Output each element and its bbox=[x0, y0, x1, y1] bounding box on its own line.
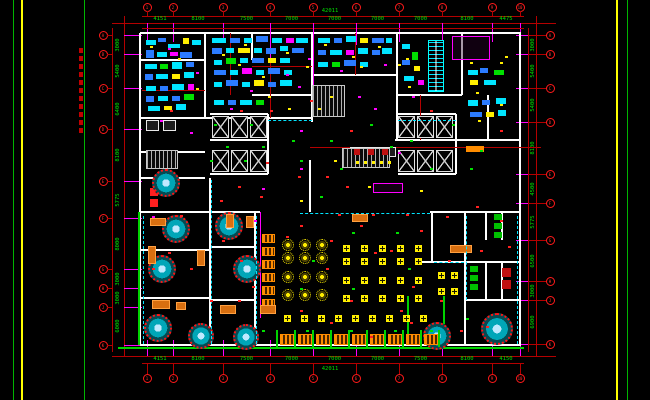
equipment-block bbox=[386, 38, 392, 43]
annotation-mark bbox=[500, 220, 503, 222]
cad-drawing-canvas[interactable]: 1415128100375004700057000670007700088100… bbox=[0, 0, 650, 400]
dining-table-square bbox=[415, 277, 422, 284]
dining-table-square bbox=[361, 295, 368, 302]
dim-label: 6400 bbox=[115, 102, 121, 115]
dim-label: 8100 bbox=[191, 356, 204, 362]
grid-bubble: C bbox=[546, 84, 555, 93]
annotation-mark bbox=[330, 96, 333, 98]
drape-line bbox=[466, 216, 467, 300]
annotation-mark bbox=[262, 76, 265, 78]
escalator bbox=[428, 40, 444, 92]
equipment-block bbox=[188, 84, 194, 90]
dim-label: 7000 bbox=[371, 356, 384, 362]
drape-line bbox=[434, 262, 464, 263]
grid-bubble: 9 bbox=[488, 374, 497, 383]
grid-bubble: 8 bbox=[438, 374, 447, 383]
grid-bubble: G bbox=[546, 236, 555, 245]
sofa-cabinet bbox=[150, 218, 166, 226]
toilet-fixture bbox=[470, 275, 478, 281]
dim-label: 8100 bbox=[460, 16, 473, 22]
elevator-cell bbox=[212, 116, 229, 138]
dim-label: 3000 bbox=[115, 38, 121, 51]
margin-vertical-text-mark bbox=[79, 56, 83, 61]
annotation-mark bbox=[262, 330, 265, 332]
equipment-block bbox=[280, 58, 290, 63]
bubble-stem bbox=[492, 363, 493, 374]
equipment-block bbox=[256, 36, 268, 42]
equipment-block bbox=[240, 100, 252, 105]
counter-block bbox=[146, 120, 159, 131]
dim-label: 3000 bbox=[530, 284, 536, 297]
grid-bubble: H bbox=[546, 277, 555, 286]
bubble-stem bbox=[107, 288, 112, 289]
equipment-block bbox=[494, 70, 504, 75]
annotation-mark bbox=[170, 110, 173, 112]
dining-table-square bbox=[361, 245, 368, 252]
annotation-mark bbox=[318, 108, 321, 110]
annotation-mark bbox=[452, 124, 455, 126]
elevator-cell bbox=[436, 150, 453, 172]
bubble-stem bbox=[270, 11, 271, 16]
equipment-block bbox=[230, 70, 238, 75]
annotation-mark bbox=[262, 188, 265, 190]
booth-divider bbox=[294, 330, 295, 347]
annotation-mark bbox=[178, 58, 181, 60]
dining-table-square bbox=[415, 258, 422, 265]
equipment-block bbox=[170, 52, 178, 56]
annotation-mark bbox=[334, 160, 337, 162]
equipment-block bbox=[280, 80, 292, 86]
dim-label: 7000 bbox=[414, 16, 427, 22]
elevator-cell bbox=[212, 150, 229, 172]
bubble-stem bbox=[107, 307, 112, 308]
annotation-mark bbox=[238, 64, 241, 66]
annotation-mark bbox=[476, 206, 479, 208]
annotation-mark bbox=[244, 44, 247, 46]
annotation-mark bbox=[268, 96, 271, 98]
dim-line bbox=[124, 16, 125, 356]
sofa-cabinet bbox=[220, 305, 236, 314]
grid-bubble: 6 bbox=[352, 374, 361, 383]
sofa-cabinet bbox=[246, 216, 254, 228]
magenta-grid-line bbox=[270, 23, 271, 60]
bubble-stem bbox=[147, 11, 148, 16]
grid-bubble: F bbox=[546, 199, 555, 208]
dining-table-square bbox=[379, 277, 386, 284]
dim-label: 4151 bbox=[153, 16, 166, 22]
bubble-stem bbox=[270, 363, 271, 374]
annotation-mark bbox=[352, 232, 355, 234]
dining-table-square bbox=[301, 315, 308, 322]
equipment-block bbox=[254, 48, 262, 53]
grid-bubble: 10 bbox=[516, 374, 525, 383]
annotation-mark bbox=[500, 130, 503, 132]
annotation-mark bbox=[398, 152, 401, 154]
annotation-mark bbox=[505, 56, 508, 58]
annotation-mark bbox=[460, 330, 463, 332]
bubble-stem bbox=[223, 11, 224, 16]
dining-table-square bbox=[369, 315, 376, 322]
equipment-block bbox=[160, 64, 168, 69]
equipment-block bbox=[372, 38, 384, 43]
equipment-block bbox=[346, 36, 356, 42]
annotation-mark bbox=[310, 100, 313, 102]
booth-divider bbox=[384, 330, 385, 347]
annotation-mark bbox=[500, 62, 503, 64]
booth-divider bbox=[402, 330, 403, 347]
counter-block bbox=[163, 120, 176, 131]
annotation-mark bbox=[180, 215, 183, 217]
equipment-block bbox=[172, 62, 182, 69]
margin-vertical-text-mark bbox=[79, 104, 83, 109]
equipment-block bbox=[418, 80, 424, 85]
grid-bubble: 5 bbox=[309, 374, 318, 383]
booth-seat bbox=[424, 334, 438, 345]
dining-table-square bbox=[397, 295, 404, 302]
wall-segment bbox=[140, 32, 521, 34]
wall-segment bbox=[210, 113, 268, 115]
dining-table-round bbox=[282, 271, 294, 283]
dim-label: 7500 bbox=[240, 356, 253, 362]
equipment-block bbox=[230, 38, 240, 43]
dining-table-square bbox=[397, 277, 404, 284]
equipment-block bbox=[148, 106, 160, 111]
equipment-block bbox=[470, 112, 482, 117]
dining-table-square bbox=[379, 258, 386, 265]
banquet-table bbox=[144, 314, 172, 342]
toilet-fixture bbox=[494, 223, 502, 229]
red-annotation-line bbox=[252, 66, 312, 67]
grid-bubble: B bbox=[546, 50, 555, 59]
annotation-mark bbox=[286, 52, 289, 54]
annotation-mark bbox=[238, 186, 241, 188]
dim-label: 5775 bbox=[115, 193, 121, 206]
magenta-room-outline bbox=[452, 36, 490, 60]
bubble-stem bbox=[528, 88, 546, 89]
equipment-block bbox=[244, 38, 252, 43]
booth-seat bbox=[334, 334, 348, 345]
wall-segment bbox=[267, 114, 269, 174]
equipment-block bbox=[344, 60, 356, 66]
annotation-mark bbox=[292, 140, 295, 142]
equipment-block bbox=[150, 199, 158, 207]
dim-label: 7000 bbox=[285, 16, 298, 22]
equipment-block bbox=[330, 50, 342, 55]
toilet-fixture bbox=[494, 232, 502, 238]
annotation-mark bbox=[370, 336, 373, 338]
red-annotation-line bbox=[142, 28, 524, 29]
sheet-border-line bbox=[13, 0, 14, 400]
equipment-block bbox=[172, 84, 184, 90]
wall-segment bbox=[140, 59, 205, 61]
sheet-border-line bbox=[616, 0, 618, 400]
annotation-mark bbox=[408, 86, 411, 88]
bubble-stem bbox=[399, 363, 400, 374]
booth-divider bbox=[330, 330, 331, 347]
annotation-mark bbox=[298, 176, 301, 178]
dim-label: 5400 bbox=[115, 64, 121, 77]
annotation-mark bbox=[340, 168, 343, 170]
annotation-mark bbox=[446, 216, 449, 218]
annotation-mark bbox=[250, 90, 253, 92]
equipment-block bbox=[214, 100, 224, 105]
booth-seat bbox=[406, 334, 420, 345]
equipment-block bbox=[228, 100, 236, 105]
dining-table-square bbox=[343, 258, 350, 265]
annotation-mark bbox=[196, 88, 199, 90]
drape-line bbox=[256, 216, 257, 344]
equipment-block bbox=[145, 64, 157, 69]
dining-table-square bbox=[438, 288, 445, 295]
equipment-block bbox=[192, 40, 201, 45]
booth-seat bbox=[388, 334, 402, 345]
annotation-mark bbox=[400, 310, 403, 312]
equipment-block bbox=[172, 74, 180, 79]
dining-table-round bbox=[299, 252, 311, 264]
margin-vertical-text-mark bbox=[79, 112, 83, 117]
dining-table-square bbox=[361, 277, 368, 284]
equipment-block bbox=[382, 48, 392, 54]
annotation-mark bbox=[352, 56, 355, 58]
annotation-mark bbox=[210, 160, 213, 162]
stool-dot bbox=[364, 161, 367, 164]
dining-table-round bbox=[299, 271, 311, 283]
equipment-block bbox=[212, 48, 222, 54]
equipment-block bbox=[334, 38, 342, 43]
equipment-block bbox=[372, 50, 380, 55]
annotation-mark bbox=[326, 176, 329, 178]
annotation-mark bbox=[478, 120, 481, 122]
drape-line bbox=[143, 216, 144, 344]
sheet-border-line bbox=[21, 0, 23, 400]
dining-table-square bbox=[335, 315, 342, 322]
annotation-mark bbox=[340, 70, 343, 72]
toilet-fixture bbox=[470, 266, 478, 272]
dining-table-square bbox=[403, 315, 410, 322]
dim-label: 3000 bbox=[115, 272, 121, 285]
equipment-block bbox=[268, 68, 280, 74]
annotation-mark bbox=[330, 240, 333, 242]
booth-seat bbox=[316, 334, 330, 345]
equipment-block bbox=[360, 38, 368, 43]
annotation-mark bbox=[408, 268, 411, 270]
annotation-mark bbox=[390, 146, 393, 148]
storefront-line bbox=[138, 212, 140, 345]
annotation-mark bbox=[168, 48, 171, 50]
grid-tick bbox=[516, 35, 528, 36]
annotation-mark bbox=[330, 140, 333, 142]
equipment-block bbox=[226, 58, 236, 64]
annotation-mark bbox=[300, 225, 303, 227]
dining-table-square bbox=[451, 288, 458, 295]
dining-table-square bbox=[415, 295, 422, 302]
equipment-block bbox=[145, 74, 153, 80]
dim-label: 8100 bbox=[460, 356, 473, 362]
equipment-block bbox=[486, 112, 494, 117]
equipment-block bbox=[414, 66, 420, 71]
dining-table-square bbox=[352, 315, 359, 322]
booth-divider bbox=[276, 330, 277, 347]
annotation-mark bbox=[470, 62, 473, 64]
grid-tick bbox=[516, 54, 528, 55]
dim-label: 7000 bbox=[328, 356, 341, 362]
annotation-mark bbox=[430, 168, 433, 170]
annotation-mark bbox=[394, 330, 397, 332]
annotation-mark bbox=[352, 288, 355, 290]
sheet-border-line bbox=[627, 0, 628, 400]
bubble-stem bbox=[528, 54, 546, 55]
annotation-mark bbox=[168, 252, 171, 254]
grid-bubble: J bbox=[546, 296, 555, 305]
booth-seat bbox=[262, 234, 275, 243]
wall-segment bbox=[210, 299, 255, 301]
equipment-block bbox=[332, 62, 340, 67]
annotation-mark bbox=[430, 110, 433, 112]
dim-label: 4150 bbox=[499, 356, 512, 362]
wall-segment bbox=[485, 212, 487, 240]
equipment-block bbox=[402, 60, 410, 65]
margin-vertical-text-mark bbox=[79, 128, 83, 133]
annotation-mark bbox=[250, 124, 253, 126]
dining-table-square bbox=[451, 272, 458, 279]
bubble-stem bbox=[107, 181, 112, 182]
wall-segment bbox=[465, 299, 520, 301]
equipment-block bbox=[186, 62, 194, 67]
booth-seat bbox=[280, 334, 294, 345]
grid-bubble: 7 bbox=[395, 374, 404, 383]
annotation-mark bbox=[254, 220, 257, 222]
booth-divider bbox=[348, 330, 349, 347]
sofa-cabinet bbox=[450, 245, 472, 253]
stair-block bbox=[312, 85, 345, 117]
margin-vertical-text-mark bbox=[79, 64, 83, 69]
equipment-block bbox=[180, 52, 192, 58]
equipment-block bbox=[358, 48, 368, 54]
dining-table-round bbox=[282, 239, 294, 251]
bubble-stem bbox=[147, 363, 148, 374]
booth-seat bbox=[262, 286, 275, 295]
annotation-mark bbox=[326, 268, 329, 270]
booth-seat bbox=[262, 260, 275, 269]
bubble-stem bbox=[313, 363, 314, 374]
dim-label: 7000 bbox=[328, 16, 341, 22]
grid-bubble: 1 bbox=[143, 374, 152, 383]
annotation-mark bbox=[260, 196, 263, 198]
dim-label: 5400 bbox=[530, 64, 536, 77]
booth-seat bbox=[262, 247, 275, 256]
wall-segment bbox=[252, 94, 312, 96]
booth-divider bbox=[312, 330, 313, 347]
wall-segment bbox=[430, 211, 521, 213]
annotation-mark bbox=[320, 196, 323, 198]
annotation-mark bbox=[306, 330, 309, 332]
margin-vertical-text-mark bbox=[79, 120, 83, 125]
margin-vertical-text-mark bbox=[79, 96, 83, 101]
dim-label: 7500 bbox=[240, 16, 253, 22]
dim-total: 42011 bbox=[322, 8, 339, 14]
annotation-mark bbox=[150, 46, 153, 48]
bubble-stem bbox=[107, 54, 112, 55]
grid-bubble: 2 bbox=[169, 374, 178, 383]
annotation-mark bbox=[308, 58, 311, 60]
equipment-block bbox=[157, 52, 167, 57]
equipment-block bbox=[146, 96, 154, 102]
equipment-block bbox=[468, 70, 478, 75]
equipment-block bbox=[318, 50, 326, 55]
stool-dot bbox=[380, 161, 383, 164]
annotation-mark bbox=[324, 44, 327, 46]
annotation-mark bbox=[412, 96, 415, 98]
drape-line bbox=[211, 180, 212, 344]
annotation-mark bbox=[374, 108, 377, 110]
annotation-mark bbox=[350, 300, 353, 302]
grid-tick bbox=[516, 203, 528, 204]
equipment-block bbox=[156, 74, 168, 79]
dim-total: 42011 bbox=[322, 366, 339, 372]
annotation-mark bbox=[222, 54, 225, 56]
wall-segment bbox=[485, 262, 487, 300]
sink-fixture bbox=[354, 149, 360, 155]
bubble-stem bbox=[223, 363, 224, 374]
annotation-mark bbox=[430, 330, 433, 332]
storefront-line bbox=[118, 347, 524, 349]
annotation-mark bbox=[160, 120, 163, 122]
wall-segment bbox=[204, 33, 206, 118]
bubble-stem bbox=[528, 344, 546, 345]
dining-table-square bbox=[379, 295, 386, 302]
annotation-mark bbox=[410, 140, 413, 142]
toilet-fixture bbox=[470, 284, 478, 290]
bubble-stem bbox=[528, 203, 546, 204]
equipment-block bbox=[412, 52, 418, 60]
equipment-block bbox=[318, 62, 328, 67]
dining-table-square bbox=[343, 295, 350, 302]
grid-bubble: A bbox=[546, 31, 555, 40]
wall-segment bbox=[455, 114, 457, 174]
dining-table-square bbox=[420, 315, 427, 322]
wall-segment bbox=[309, 160, 311, 212]
annotation-mark bbox=[300, 130, 303, 132]
equipment-block bbox=[318, 38, 330, 43]
dim-label: 4475 bbox=[499, 16, 512, 22]
equipment-block bbox=[256, 100, 264, 105]
annotation-mark bbox=[412, 286, 415, 288]
dining-table-square bbox=[343, 245, 350, 252]
annotation-mark bbox=[210, 300, 213, 302]
dim-line bbox=[528, 28, 529, 352]
stool-dot bbox=[356, 161, 359, 164]
dim-label: 6900 bbox=[530, 315, 536, 328]
equipment-block bbox=[498, 110, 506, 116]
wall-segment bbox=[519, 33, 521, 345]
equipment-block bbox=[268, 82, 276, 87]
annotation-mark bbox=[360, 225, 363, 227]
bubble-stem bbox=[356, 11, 357, 16]
annotation-mark bbox=[410, 322, 413, 324]
dim-label: 7000 bbox=[371, 16, 384, 22]
annotation-mark bbox=[300, 288, 303, 290]
dining-table-round bbox=[299, 239, 311, 251]
equipment-block bbox=[242, 68, 252, 74]
annotation-mark bbox=[288, 108, 291, 110]
stair-block bbox=[146, 150, 178, 169]
equipment-block bbox=[242, 82, 250, 87]
annotation-mark bbox=[300, 160, 303, 162]
annotation-mark bbox=[440, 300, 443, 302]
annotation-mark bbox=[244, 160, 247, 162]
annotation-mark bbox=[240, 260, 243, 262]
booth-seat bbox=[298, 334, 312, 345]
